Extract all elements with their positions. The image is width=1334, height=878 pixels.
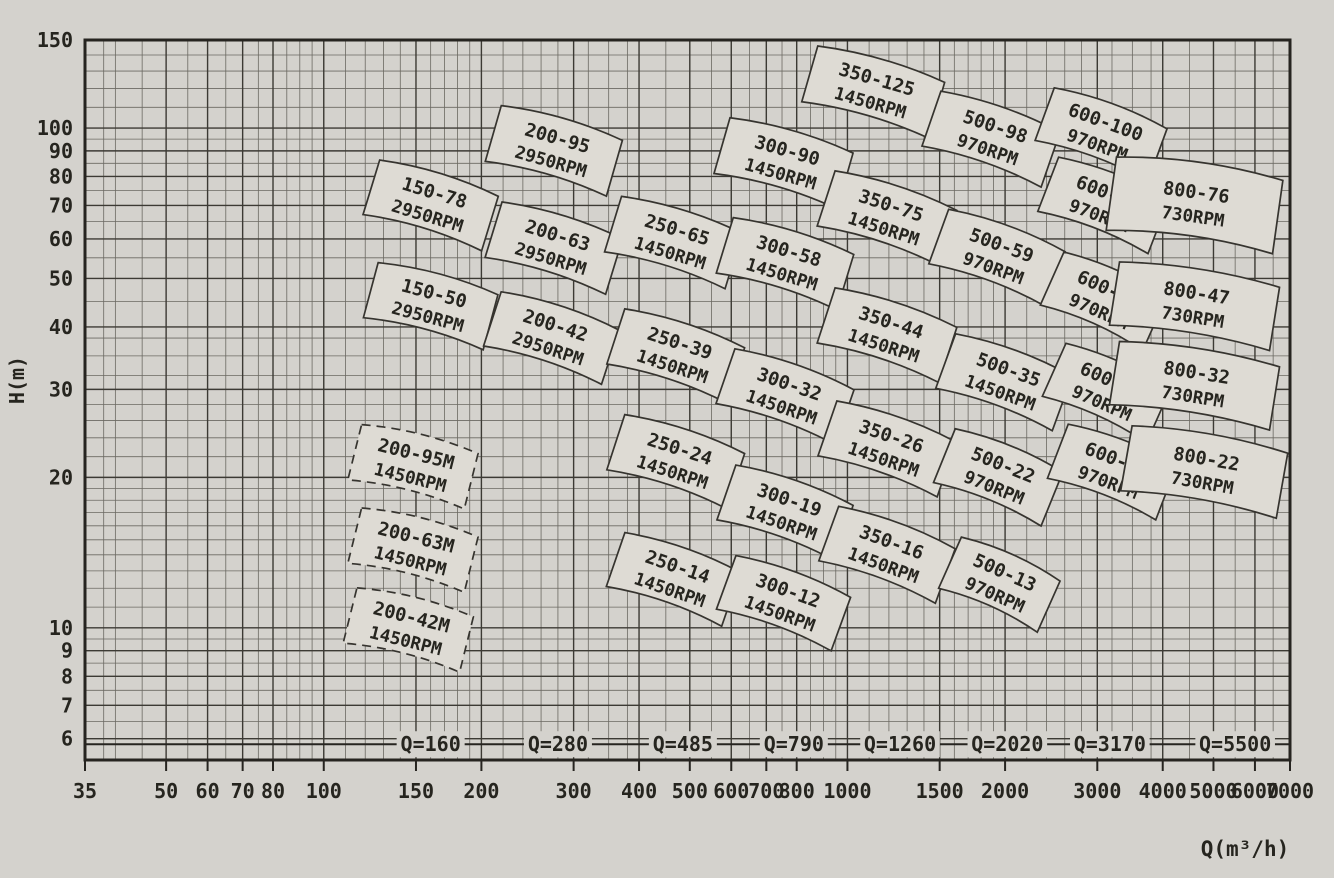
q-reference-label: Q=5500 [1199, 732, 1271, 756]
x-tick-label: 1000 [823, 779, 871, 803]
y-tick-label: 150 [37, 28, 73, 52]
q-reference-label: Q=280 [528, 732, 588, 756]
q-reference-label: Q=2020 [971, 732, 1043, 756]
x-tick-label: 50 [154, 779, 178, 803]
x-tick-label: 35 [73, 779, 97, 803]
x-tick-label: 2000 [981, 779, 1029, 803]
q-reference-label: Q=1260 [864, 732, 936, 756]
x-axis-title: Q(m³/h) [1201, 837, 1290, 861]
y-tick-label: 8 [61, 664, 73, 688]
x-tick-label: 150 [398, 779, 434, 803]
y-tick-label: 10 [49, 616, 73, 640]
q-reference-label: Q=790 [764, 732, 824, 756]
x-tick-label: 200 [463, 779, 499, 803]
x-tick-label: 80 [261, 779, 285, 803]
y-tick-label: 40 [49, 315, 73, 339]
y-tick-label: 50 [49, 266, 73, 290]
x-tick-label: 300 [556, 779, 592, 803]
x-tick-label: 100 [306, 779, 342, 803]
y-tick-label: 30 [49, 377, 73, 401]
y-tick-label: 100 [37, 116, 73, 140]
y-tick-label: 7 [61, 693, 73, 717]
x-tick-label: 1500 [916, 779, 964, 803]
pump-selection-chart: Q=160Q=280Q=485Q=790Q=1260Q=2020Q=3170Q=… [0, 0, 1334, 878]
x-tick-label: 800 [779, 779, 815, 803]
y-tick-label: 20 [49, 465, 73, 489]
y-tick-label: 90 [49, 139, 73, 163]
y-tick-label: 80 [49, 164, 73, 188]
x-tick-label: 7000 [1266, 779, 1314, 803]
q-reference-label: Q=160 [401, 732, 461, 756]
q-reference-label: Q=485 [653, 732, 713, 756]
y-tick-label: 60 [49, 227, 73, 251]
x-tick-label: 600 [713, 779, 749, 803]
x-tick-label: 60 [196, 779, 220, 803]
pump-selection-chart-page: Q=160Q=280Q=485Q=790Q=1260Q=2020Q=3170Q=… [0, 0, 1334, 878]
y-axis-title: H(m) [5, 356, 29, 404]
y-tick-label: 70 [49, 193, 73, 217]
y-tick-label: 6 [61, 727, 73, 751]
x-tick-label: 500 [672, 779, 708, 803]
x-tick-label: 400 [621, 779, 657, 803]
q-reference-label: Q=3170 [1074, 732, 1146, 756]
x-tick-label: 3000 [1073, 779, 1121, 803]
x-tick-label: 4000 [1139, 779, 1187, 803]
y-tick-label: 9 [61, 639, 73, 663]
x-tick-label: 70 [231, 779, 255, 803]
